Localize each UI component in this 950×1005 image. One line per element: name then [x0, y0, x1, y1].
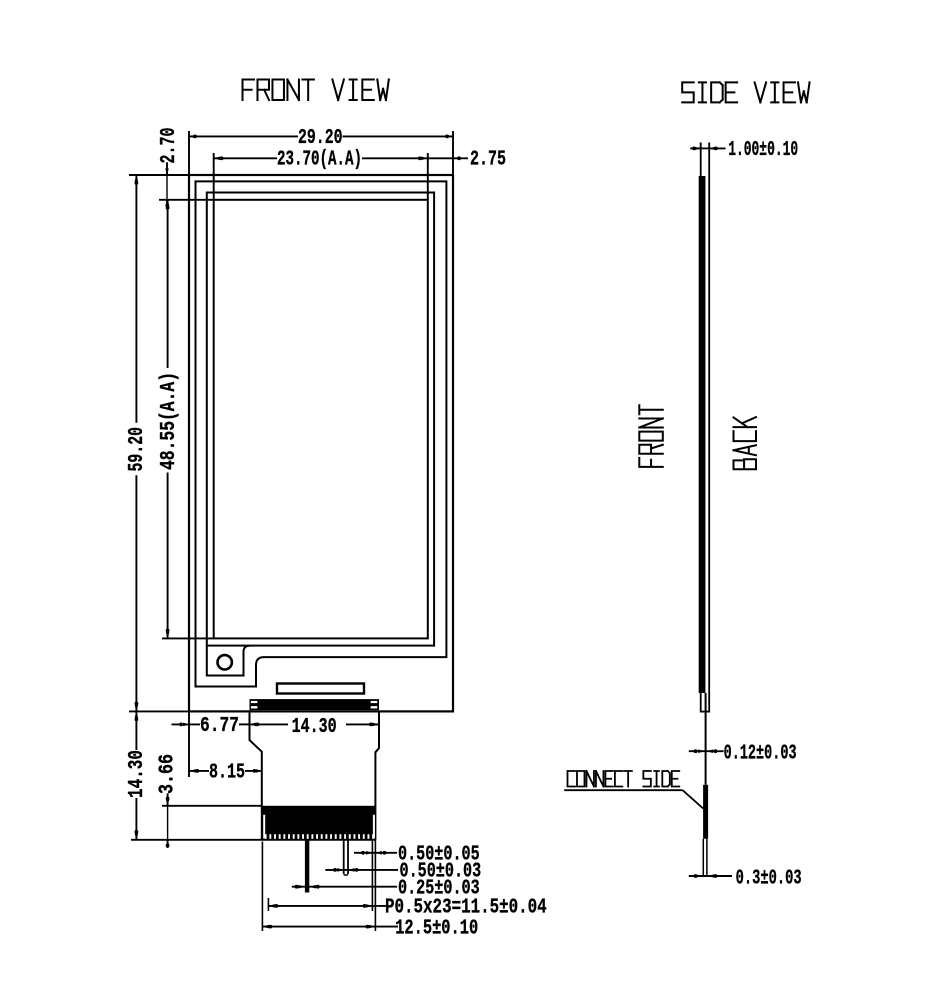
svg-text:3.66: 3.66: [157, 754, 180, 794]
svg-text:12.5±0.10: 12.5±0.10: [395, 917, 478, 940]
svg-text:23.70(A.A): 23.70(A.A): [277, 149, 362, 172]
svg-text:2.75: 2.75: [470, 149, 506, 172]
svg-text:P0.5x23=11.5±0.04: P0.5x23=11.5±0.04: [385, 897, 547, 920]
svg-text:14.30: 14.30: [292, 716, 337, 739]
svg-text:29.20: 29.20: [298, 127, 343, 150]
svg-text:59.20: 59.20: [126, 427, 149, 472]
svg-text:6.77: 6.77: [200, 715, 239, 738]
svg-text:8.15: 8.15: [209, 762, 245, 785]
svg-text:1.00±0.10: 1.00±0.10: [728, 139, 798, 162]
svg-text:14.30: 14.30: [126, 750, 149, 798]
svg-text:48.55(A.A): 48.55(A.A): [158, 372, 181, 470]
svg-text:0.12±0.03: 0.12±0.03: [724, 743, 797, 766]
svg-text:0.3±0.03: 0.3±0.03: [736, 868, 802, 891]
svg-text:2.70: 2.70: [158, 128, 181, 164]
